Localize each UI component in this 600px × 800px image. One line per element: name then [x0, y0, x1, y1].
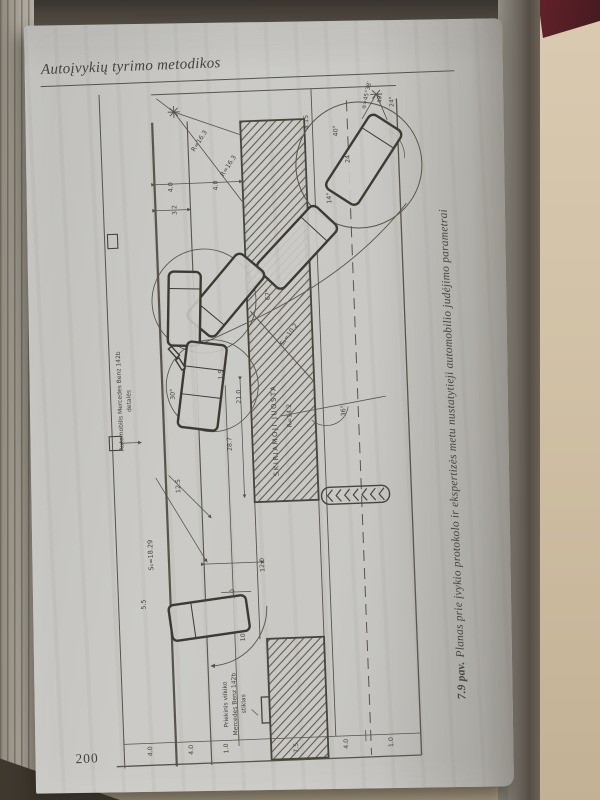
svg-text:R=14.2: R=14.2 — [286, 404, 294, 428]
svg-text:67°: 67° — [264, 289, 272, 300]
svg-text:1.9: 1.9 — [218, 369, 225, 379]
svg-text:R=16.3: R=16.3 — [219, 154, 238, 178]
svg-text:Mercedes Benz 142b: Mercedes Benz 142b — [230, 672, 239, 735]
svg-text:1.0: 1.0 — [223, 743, 230, 753]
svg-text:α=45°38′: α=45°38′ — [361, 81, 373, 110]
svg-text:1.0: 1.0 — [229, 589, 236, 599]
svg-text:28.7: 28.7 — [226, 437, 234, 451]
svg-text:30°: 30° — [168, 389, 176, 400]
running-header: Autoįvykių tyrimo metodikos — [41, 55, 221, 79]
page-content: Autoįvykių tyrimo metodikos — [23, 8, 530, 794]
svg-text:40°: 40° — [377, 93, 383, 104]
svg-text:4.0: 4.0 — [167, 182, 174, 192]
page-number: 200 — [75, 750, 99, 767]
svg-text:21.0: 21.0 — [235, 390, 243, 404]
svg-text:4.0: 4.0 — [343, 739, 350, 749]
chevron-road-marking — [321, 485, 390, 505]
svg-text:stiklas: stiklas — [240, 694, 248, 713]
svg-text:1.0: 1.0 — [388, 737, 395, 747]
svg-text:7.5: 7.5 — [293, 743, 300, 753]
svg-text:4.0: 4.0 — [188, 745, 195, 755]
svg-text:12.5: 12.5 — [175, 479, 183, 493]
svg-text:12.0: 12.0 — [259, 558, 267, 572]
svg-text:14°: 14° — [325, 192, 333, 203]
svg-text:10°: 10° — [239, 630, 247, 641]
svg-text:4.0: 4.0 — [147, 746, 154, 756]
svg-text:4.15: 4.15 — [303, 115, 311, 129]
svg-text:40°: 40° — [331, 125, 339, 136]
svg-text:Priekinis vilkiko: Priekinis vilkiko — [222, 681, 231, 728]
svg-text:R=16.3: R=16.3 — [190, 129, 209, 153]
svg-text:3.2: 3.2 — [171, 205, 178, 215]
svg-text:4.0: 4.0 — [212, 180, 219, 190]
svg-text:S₁=18.29: S₁=18.29 — [146, 540, 155, 571]
svg-text:detalės: detalės — [125, 390, 133, 412]
svg-text:24°: 24° — [343, 152, 351, 163]
svg-text:24°: 24° — [389, 96, 395, 107]
book-page: Autoįvykių tyrimo metodikos — [24, 18, 514, 793]
svg-text:36°: 36° — [339, 405, 347, 416]
accident-plan-diagram: Automobilis Mercedes Benz 142bdetalėsSKI… — [84, 72, 451, 787]
svg-text:5.5: 5.5 — [140, 599, 147, 609]
caption-figure-number: 7.9 pav. — [455, 661, 468, 699]
